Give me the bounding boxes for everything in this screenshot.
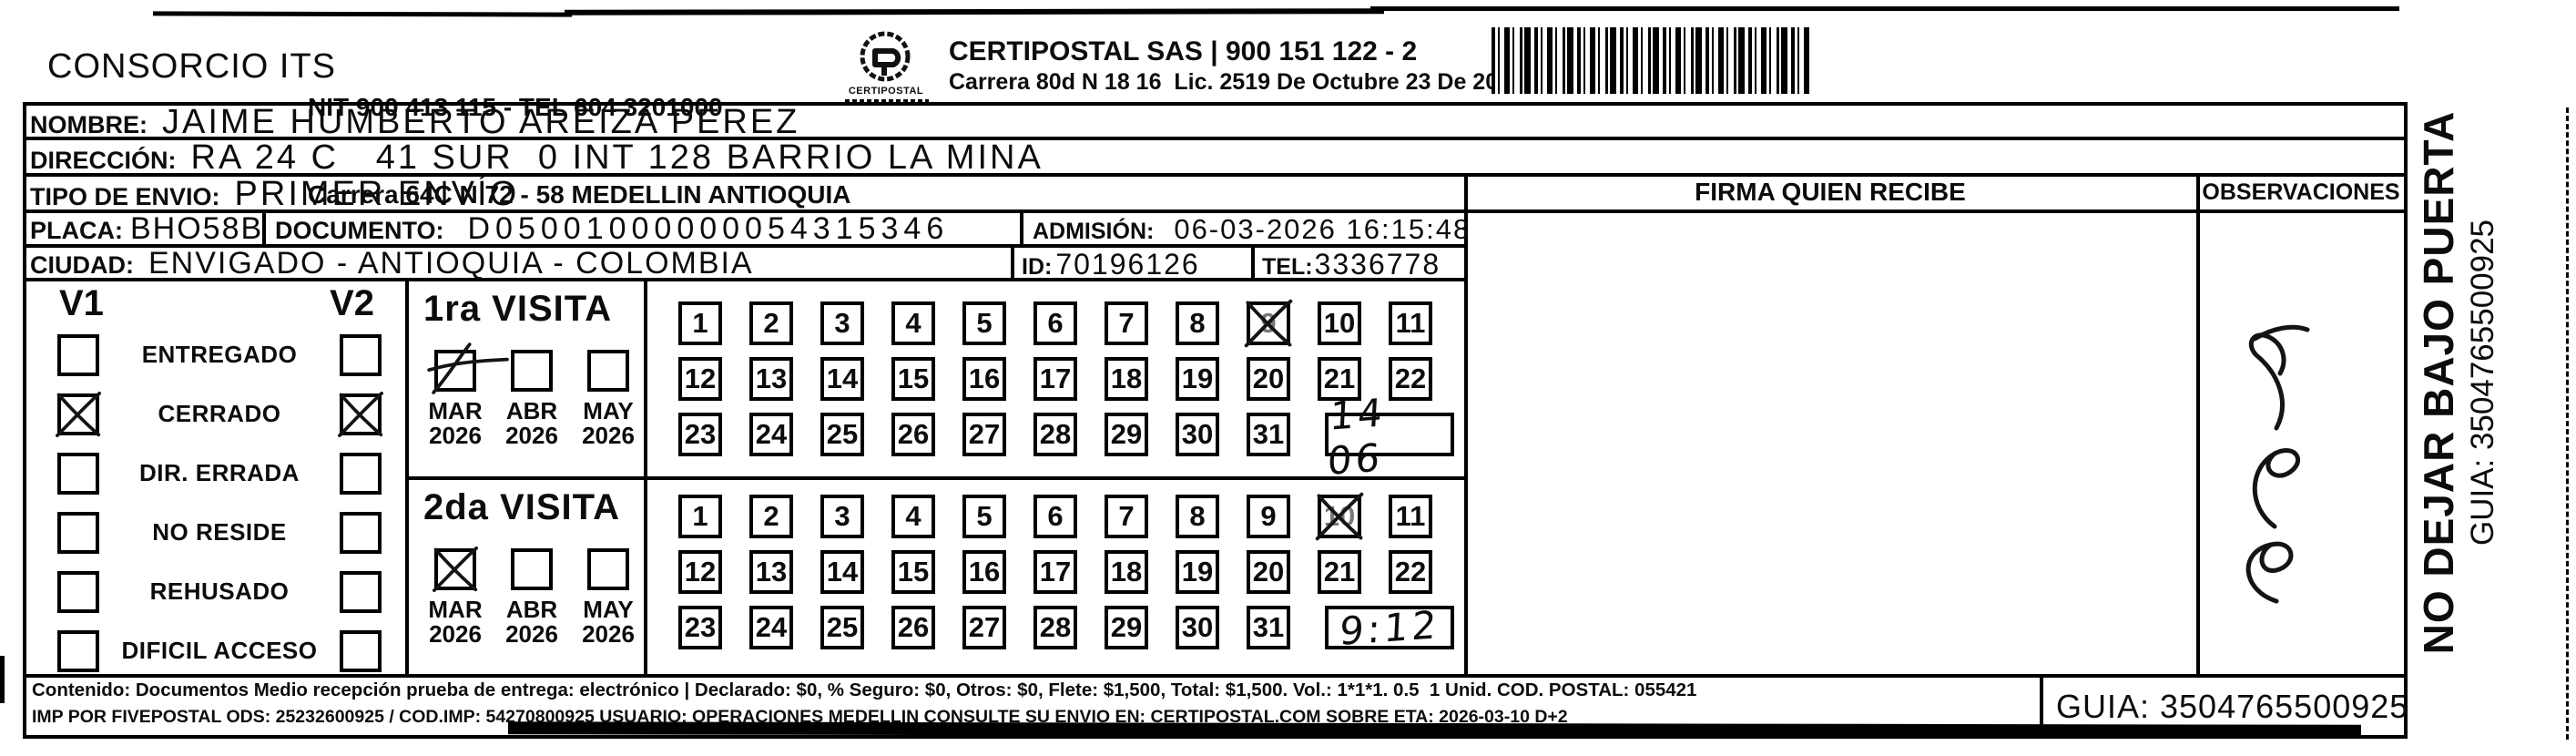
days-row: 1234567891011 — [678, 301, 1464, 345]
nombre-row: NOMBRE: JAIME HUMBERTO AREIZA PEREZ — [30, 103, 799, 136]
day-11: 11 — [1389, 495, 1432, 538]
day-number: 12 — [685, 556, 716, 588]
day-22: 22 — [1389, 550, 1432, 594]
scan-artifact-top-line — [565, 8, 1384, 15]
v1-column-label: V1 — [59, 283, 104, 324]
day-number: 24 — [756, 611, 787, 644]
day-number: 9 — [1260, 500, 1276, 533]
checkbox-v1-no-reside — [57, 512, 99, 554]
day-number: 12 — [685, 363, 716, 395]
days-row: 2324252627282930319:12 — [678, 606, 1464, 649]
handwritten-x-mark — [61, 397, 96, 432]
day-13: 13 — [749, 357, 793, 401]
status-label: ENTREGADO — [99, 341, 340, 369]
day-number: 13 — [756, 363, 787, 395]
day-25: 25 — [820, 606, 864, 649]
day-number: 1 — [692, 307, 708, 340]
day-number: 6 — [1047, 307, 1063, 340]
month-checkbox-mar — [434, 350, 476, 392]
visit-2-day-grid: 1234567891011121314151617181920212223242… — [647, 480, 1464, 671]
day-number: 27 — [969, 611, 1000, 644]
day-3: 3 — [820, 495, 864, 538]
day-6: 6 — [1033, 495, 1077, 538]
day-number: 17 — [1040, 363, 1071, 395]
documento-label: DOCUMENTO: — [275, 217, 444, 245]
day-number: 17 — [1040, 556, 1071, 588]
day-31: 31 — [1247, 606, 1290, 649]
status-row-rehusado: REHUSADO — [26, 563, 402, 620]
direccion-row: DIRECCIÓN: RA 24 C 41 SUR 0 INT 128 BARR… — [30, 138, 1044, 171]
status-rows: ENTREGADOCERRADODIR. ERRADANO RESIDEREHU… — [26, 326, 402, 679]
day-number: 29 — [1111, 611, 1142, 644]
status-row-no-reside: NO RESIDE — [26, 504, 402, 561]
day-10: 10 — [1318, 495, 1361, 538]
day-19: 19 — [1176, 357, 1219, 401]
day-14: 14 — [820, 550, 864, 594]
day-number: 31 — [1253, 418, 1284, 451]
day-number: 18 — [1111, 556, 1142, 588]
day-31: 31 — [1247, 413, 1290, 456]
checkbox-v1-dir-errada — [57, 453, 99, 495]
day-number: 23 — [685, 611, 716, 644]
day-8: 8 — [1176, 495, 1219, 538]
placa-group: PLACA: BHO58B — [30, 211, 263, 242]
days-row: 23242526272829303114 06 — [678, 413, 1464, 456]
checkbox-v2-entregado — [340, 334, 382, 376]
day-8: 8 — [1176, 301, 1219, 345]
status-row-dificil-acceso: DIFICIL ACCESO — [26, 622, 402, 679]
day-number: 13 — [756, 556, 787, 588]
certipostal-logo-icon — [852, 31, 918, 90]
day-5: 5 — [962, 301, 1006, 345]
status-label: REHUSADO — [99, 577, 340, 606]
visit-1-months-box: 1ra VISITA MAR 2026ABR 2026MAY 2026 — [409, 281, 640, 473]
day-13: 13 — [749, 550, 793, 594]
day-4: 4 — [891, 301, 935, 345]
day-18: 18 — [1105, 357, 1148, 401]
day-12: 12 — [678, 357, 722, 401]
ciudad-group: CIUDAD: ENVIGADO - ANTIOQUIA - COLOMBIA — [30, 246, 754, 277]
day-number: 25 — [827, 418, 858, 451]
month-mar-2026: MAR 2026 — [423, 548, 487, 647]
day-number: 4 — [905, 500, 921, 533]
day-number: 20 — [1253, 556, 1284, 588]
status-row-dir-errada: DIR. ERRADA — [26, 444, 402, 502]
day-number: 23 — [685, 418, 716, 451]
days-row: 1234567891011 — [678, 495, 1464, 538]
day-10: 10 — [1318, 301, 1361, 345]
company-name: CONSORCIO ITS — [47, 47, 336, 87]
nombre-value: JAIME HUMBERTO AREIZA PEREZ — [162, 103, 799, 142]
id-label: ID: — [1022, 254, 1052, 281]
handwritten-x-mark — [1321, 498, 1358, 535]
day-number: 7 — [1118, 307, 1134, 340]
checkbox-v1-rehusado — [57, 571, 99, 613]
status-label: DIR. ERRADA — [99, 459, 340, 487]
visit-2-month-checkboxes: MAR 2026ABR 2026MAY 2026 — [409, 548, 640, 647]
day-number: 10 — [1324, 307, 1355, 340]
day-28: 28 — [1033, 413, 1077, 456]
month-label: ABR 2026 — [505, 598, 558, 647]
documento-value: D05001000000054315346 — [468, 211, 950, 247]
id-value: 70196126 — [1055, 248, 1199, 281]
footer-content-line: Contenido: Documentos Medio recepción pr… — [32, 679, 1696, 701]
day-21: 21 — [1318, 550, 1361, 594]
day-number: 2 — [763, 500, 779, 533]
day-number: 4 — [905, 307, 921, 340]
day-number: 22 — [1395, 556, 1426, 588]
checkbox-v2-cerrado — [340, 393, 382, 435]
day-15: 15 — [891, 550, 935, 594]
v2-column-label: V2 — [330, 283, 374, 324]
day-26: 26 — [891, 413, 935, 456]
month-label: MAR 2026 — [428, 399, 482, 448]
month-may-2026: MAY 2026 — [576, 350, 640, 448]
day-7: 7 — [1105, 301, 1148, 345]
status-label: CERRADO — [99, 400, 340, 428]
nombre-label: NOMBRE: — [30, 111, 148, 139]
admision-label: ADMISIÓN: — [1033, 219, 1154, 245]
carrier-name: CERTIPOSTAL SAS | 900 151 122 - 2 — [949, 36, 1417, 67]
month-abr-2026: ABR 2026 — [500, 548, 564, 647]
day-number: 31 — [1253, 611, 1284, 644]
status-row-entregado: ENTREGADO — [26, 326, 402, 383]
day-19: 19 — [1176, 550, 1219, 594]
day-4: 4 — [891, 495, 935, 538]
placa-label: PLACA: — [30, 217, 123, 245]
day-number: 26 — [898, 611, 929, 644]
day-3: 3 — [820, 301, 864, 345]
day-29: 29 — [1105, 413, 1148, 456]
checkbox-v1-entregado — [57, 334, 99, 376]
scan-artifact-top-line — [1370, 6, 2399, 11]
day-number: 11 — [1396, 307, 1426, 340]
admision-group: ADMISIÓN: 06-03-2026 16:15:48 — [1033, 213, 1471, 242]
day-number: 20 — [1253, 363, 1284, 395]
day-number: 19 — [1182, 556, 1213, 588]
firma-quien-recibe-header: FIRMA QUIEN RECIBE — [1468, 175, 2193, 209]
visit-2-title: 2da VISITA — [409, 480, 640, 528]
month-checkbox-abr — [511, 548, 553, 590]
visit-1-title: 1ra VISITA — [409, 281, 640, 330]
day-9: 9 — [1247, 301, 1290, 345]
day-number: 1 — [692, 500, 708, 533]
day-6: 6 — [1033, 301, 1077, 345]
status-box: V1 V2 ENTREGADOCERRADODIR. ERRADANO RESI… — [26, 281, 402, 670]
scan-artifact-left-tick — [0, 656, 5, 703]
day-number: 5 — [976, 500, 992, 533]
day-number: 14 — [827, 556, 858, 588]
tipo-envio-label: TIPO DE ENVIO: — [30, 183, 220, 211]
observaciones-header: OBSERVACIONES — [2198, 175, 2404, 209]
direccion-label: DIRECCIÓN: — [30, 147, 177, 175]
checkbox-v1-cerrado — [57, 393, 99, 435]
day-number: 28 — [1040, 611, 1071, 644]
day-16: 16 — [962, 357, 1006, 401]
day-17: 17 — [1033, 357, 1077, 401]
day-16: 16 — [962, 550, 1006, 594]
status-label: NO RESIDE — [99, 518, 340, 547]
day-20: 20 — [1247, 357, 1290, 401]
day-number: 5 — [976, 307, 992, 340]
day-1: 1 — [678, 301, 722, 345]
scan-artifact-top-line — [153, 11, 572, 16]
day-30: 30 — [1176, 413, 1219, 456]
checkbox-v2-dir-errada — [340, 453, 382, 495]
day-29: 29 — [1105, 606, 1148, 649]
handwritten-time: 14 06 — [1327, 385, 1453, 484]
status-row-cerrado: CERRADO — [26, 385, 402, 443]
day-number: 3 — [834, 307, 850, 340]
status-label: DIFICIL ACCESO — [99, 637, 340, 665]
visit-1-day-grid: 1234567891011121314151617181920212223242… — [647, 281, 1464, 473]
day-number: 25 — [827, 611, 858, 644]
side-rotated-label: NO DEJAR BAJO PUERTA GUIA: 3504765500925 — [2414, 111, 2501, 655]
visit-2-months-box: 2da VISITA MAR 2026ABR 2026MAY 2026 — [409, 480, 640, 671]
day-number: 11 — [1396, 500, 1426, 533]
tracking-barcode — [1492, 27, 1812, 94]
documento-group: DOCUMENTO: D05001000000054315346 — [275, 211, 949, 242]
handwritten-x-mark — [438, 552, 473, 587]
day-30: 30 — [1176, 606, 1219, 649]
time-entry-box: 9:12 — [1325, 606, 1454, 649]
day-number: 28 — [1040, 418, 1071, 451]
day-number: 18 — [1111, 363, 1142, 395]
month-label: MAR 2026 — [428, 598, 482, 647]
tipo-envio-row: TIPO DE ENVIO: PRIMER ENVÍO — [30, 175, 519, 208]
tel-value: 3336778 — [1315, 248, 1441, 281]
month-checkbox-abr — [511, 350, 553, 392]
day-26: 26 — [891, 606, 935, 649]
day-12: 12 — [678, 550, 722, 594]
side-guia-number: GUIA: 3504765500925 — [2465, 111, 2501, 655]
day-number: 15 — [898, 556, 929, 588]
guia-number: GUIA: 3504765500925 — [2056, 688, 2408, 726]
month-abr-2026: ABR 2026 — [500, 350, 564, 448]
day-2: 2 — [749, 301, 793, 345]
day-number: 27 — [969, 418, 1000, 451]
tel-group: TEL: 3336778 — [1262, 248, 1441, 277]
tel-label: TEL: — [1262, 254, 1313, 281]
perforation-dashed-edge — [2566, 107, 2569, 740]
month-label: ABR 2026 — [505, 399, 558, 448]
day-24: 24 — [749, 413, 793, 456]
day-number: 21 — [1324, 363, 1355, 395]
footer-imp-line: IMP POR FIVEPOSTAL ODS: 25232600925 / CO… — [32, 707, 1568, 728]
checkbox-v1-dificil-acceso — [57, 630, 99, 672]
handwritten-x-mark — [1250, 305, 1287, 342]
day-25: 25 — [820, 413, 864, 456]
no-dejar-bajo-puerta-label: NO DEJAR BAJO PUERTA — [2414, 111, 2463, 655]
visit-columns-header: V1 V2 — [26, 281, 402, 324]
month-checkbox-may — [587, 350, 629, 392]
day-number: 16 — [969, 556, 1000, 588]
month-checkbox-mar — [434, 548, 476, 590]
day-number: 21 — [1324, 556, 1355, 588]
day-14: 14 — [820, 357, 864, 401]
day-number: 6 — [1047, 500, 1063, 533]
month-checkbox-may — [587, 548, 629, 590]
visit-1-month-checkboxes: MAR 2026ABR 2026MAY 2026 — [409, 350, 640, 448]
handwritten-x-mark — [343, 397, 378, 432]
day-number: 14 — [827, 363, 858, 395]
day-28: 28 — [1033, 606, 1077, 649]
handwritten-slash-mark — [438, 353, 473, 388]
carrier-address: Carrera 80d N 18 16 Lic. 2519 De Octubre… — [949, 69, 1523, 96]
direccion-value: RA 24 C 41 SUR 0 INT 128 BARRIO LA MINA — [191, 138, 1044, 178]
logo-caption: CERTIPOSTAL — [836, 86, 936, 97]
month-label: MAY 2026 — [582, 399, 635, 448]
day-number: 29 — [1111, 418, 1142, 451]
month-may-2026: MAY 2026 — [576, 548, 640, 647]
day-5: 5 — [962, 495, 1006, 538]
day-number: 16 — [969, 363, 1000, 395]
admision-value: 06-03-2026 16:15:48 — [1174, 213, 1471, 246]
checkbox-v2-rehusado — [340, 571, 382, 613]
day-number: 30 — [1182, 418, 1213, 451]
day-number: 24 — [756, 418, 787, 451]
day-number: 30 — [1182, 611, 1213, 644]
day-number: 7 — [1118, 500, 1134, 533]
month-mar-2026: MAR 2026 — [423, 350, 487, 448]
handwritten-time: 9:12 — [1339, 602, 1441, 654]
day-number: 19 — [1182, 363, 1213, 395]
checkbox-v2-dificil-acceso — [340, 630, 382, 672]
day-number: 15 — [898, 363, 929, 395]
ciudad-label: CIUDAD: — [30, 251, 134, 280]
days-row: 1213141516171819202122 — [678, 550, 1464, 594]
day-17: 17 — [1033, 550, 1077, 594]
scanned-delivery-form: CONSORCIO ITS NIT 900 413 115 - TEL 604 … — [0, 0, 2576, 756]
day-number: 8 — [1189, 307, 1205, 340]
day-27: 27 — [962, 606, 1006, 649]
day-23: 23 — [678, 413, 722, 456]
month-label: MAY 2026 — [582, 598, 635, 647]
day-18: 18 — [1105, 550, 1148, 594]
day-27: 27 — [962, 413, 1006, 456]
day-number: 3 — [834, 500, 850, 533]
day-2: 2 — [749, 495, 793, 538]
day-number: 26 — [898, 418, 929, 451]
day-20: 20 — [1247, 550, 1290, 594]
day-23: 23 — [678, 606, 722, 649]
day-24: 24 — [749, 606, 793, 649]
placa-value: BHO58B — [130, 211, 263, 247]
day-number: 2 — [763, 307, 779, 340]
day-1: 1 — [678, 495, 722, 538]
day-15: 15 — [891, 357, 935, 401]
checkbox-v2-no-reside — [340, 512, 382, 554]
day-7: 7 — [1105, 495, 1148, 538]
day-11: 11 — [1389, 301, 1432, 345]
day-9: 9 — [1247, 495, 1290, 538]
id-group: ID: 70196126 — [1022, 248, 1200, 277]
time-entry-box: 14 06 — [1325, 413, 1454, 456]
ciudad-value: ENVIGADO - ANTIOQUIA - COLOMBIA — [148, 246, 754, 281]
tipo-envio-value: PRIMER ENVÍO — [235, 175, 520, 214]
day-number: 8 — [1189, 500, 1205, 533]
